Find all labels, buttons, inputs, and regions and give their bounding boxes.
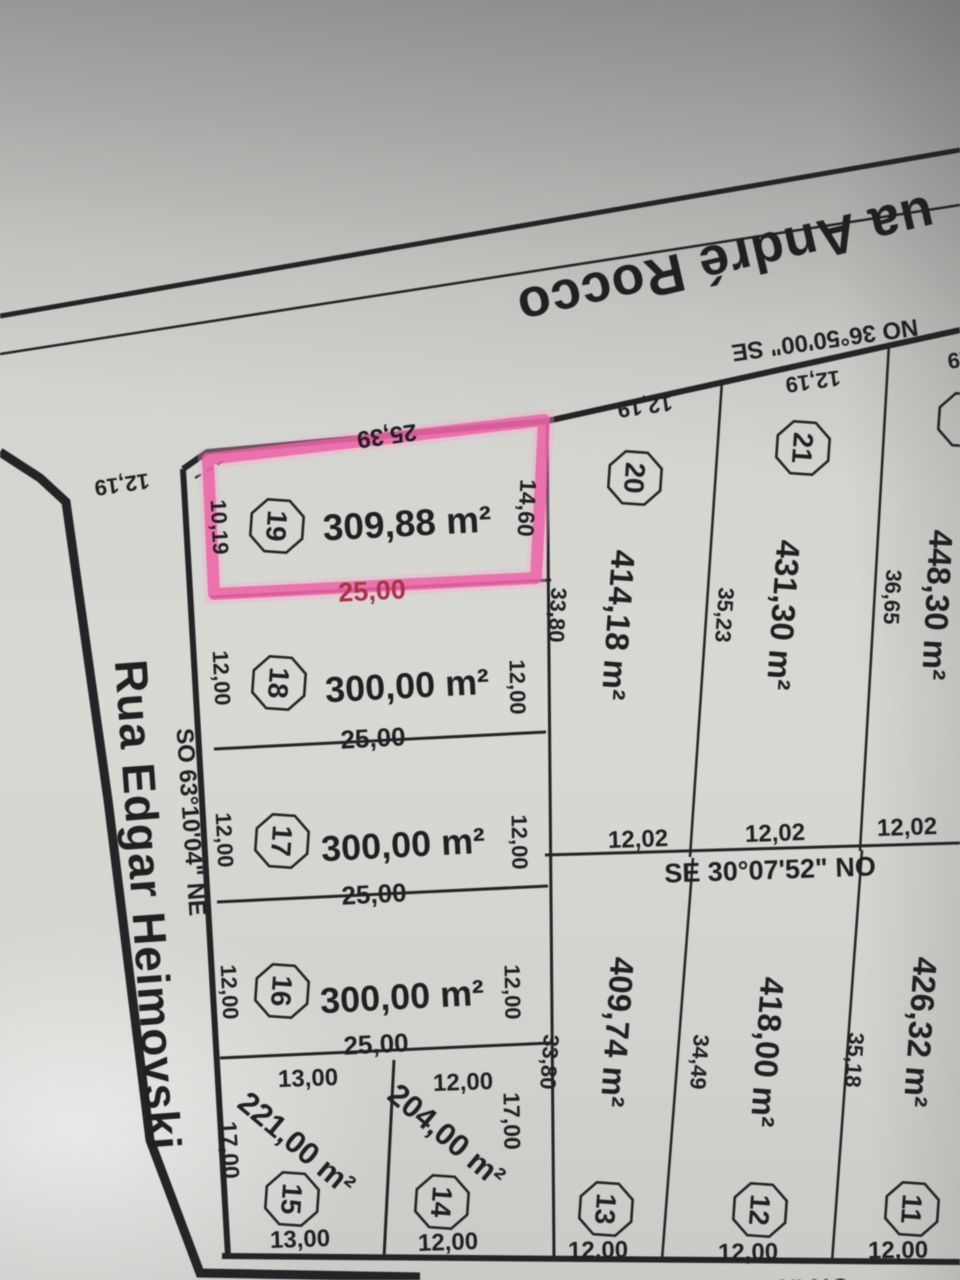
- bottom-bearing-partial-label: SE 30°40'50" NO: [639, 1273, 851, 1280]
- middle-width-1: 12,02: [608, 825, 669, 854]
- lot-17-area-label: 300,00 m²: [320, 820, 486, 870]
- lot-12-area-label: 418,00 m²: [744, 976, 791, 1129]
- lot-21-number: 21: [786, 431, 819, 464]
- lot-19-rear-dim: 25,00: [337, 574, 406, 607]
- lot-15-left-dim: 17,00: [216, 1121, 245, 1180]
- lot-13-area-label: 409,74 m²: [594, 956, 641, 1109]
- lot-13-rear-dim: 12,00: [568, 1236, 629, 1264]
- lot-11-rear-dim: 12,00: [868, 1236, 929, 1264]
- lot-20-side-dim: 33,80: [544, 587, 572, 643]
- lot-18-right-dim: 12,00: [505, 659, 531, 714]
- lot-21-side-dim: 35,23: [710, 587, 739, 644]
- middle-width-2: 12,02: [745, 819, 806, 848]
- lot-17-number: 17: [265, 824, 298, 857]
- lot-16-left-dim: 12,00: [216, 964, 244, 1020]
- plat-photo: ua André Rocco NO 36°50'00" SE Rua Edgar…: [0, 0, 960, 1280]
- lot-18-number: 18: [262, 666, 295, 699]
- lot-14-front-dim: 12,00: [433, 1068, 494, 1097]
- lot-15-rear-dim: 13,00: [270, 1225, 331, 1254]
- frontage-lot20-label: 12,19: [616, 390, 674, 422]
- lot-19-front-dim: 25,39: [355, 418, 418, 453]
- lot-19-right-dim: 14,60: [513, 479, 542, 538]
- lot-11-area-label: 426,32 m²: [897, 956, 944, 1109]
- lot-14-number: 14: [425, 1185, 458, 1219]
- street-andre-rocco-label: ua André Rocco: [511, 184, 940, 338]
- lot-20-area-label: 414,18 m²: [595, 549, 642, 702]
- lot-13-number: 13: [589, 1192, 622, 1225]
- lot-17-right-dim: 12,00: [507, 814, 533, 869]
- lot-19-left-dim: 10,19: [206, 499, 234, 555]
- lot-14-rear-dim: 12,00: [418, 1228, 479, 1257]
- lot-17-rear-dim: 25,00: [341, 877, 408, 910]
- lot-16-area-label: 300,00 m²: [319, 972, 485, 1022]
- lot-12-side-dim: 34,49: [685, 1034, 714, 1091]
- lot-19-area-label: 309,88 m²: [322, 499, 493, 549]
- lot-15-front-dim: 13,00: [278, 1064, 339, 1093]
- lot-22-area-label: 448,30 m²: [915, 529, 960, 681]
- lot-20-number: 20: [618, 461, 651, 494]
- lot-18-rear-dim: 25,00: [340, 721, 407, 754]
- lot-14-right-dim: 17,00: [498, 1092, 525, 1150]
- middle-width-3: 12,02: [877, 813, 938, 842]
- column-divider-line: [547, 421, 554, 1258]
- middle-bearing-label: SE 30°07'52" NO: [664, 851, 877, 888]
- lot-16-rear-dim: 25,00: [343, 1027, 410, 1060]
- lot-13-side-dim: 33,80: [535, 1034, 564, 1091]
- lot-11-side-dim: 35,18: [840, 1032, 869, 1089]
- lot-18-area-label: 300,00 m²: [324, 661, 490, 711]
- lot-12-number: 12: [743, 1193, 776, 1226]
- frontage-lot21-label: 12,19: [784, 365, 842, 397]
- lot-11-number: 11: [895, 1193, 928, 1225]
- frontage-corner-label: 12,19: [93, 468, 151, 500]
- lot-17-left-dim: 12,00: [211, 812, 239, 868]
- lot-21-area-label: 431,30 m²: [760, 539, 807, 692]
- lot-22-side-dim: 36,65: [879, 569, 907, 625]
- street-edgar-heimovski-bearing: SO 63°10'04" NE: [170, 727, 210, 917]
- plat-map: ua André Rocco NO 36°50'00" SE Rua Edgar…: [0, 0, 960, 1280]
- lot-22-marker-partial: [937, 392, 960, 448]
- lot-19-number: 19: [260, 509, 293, 542]
- lot-18-left-dim: 12,00: [208, 650, 236, 706]
- lot-12-rear-dim: 12,00: [718, 1238, 779, 1266]
- frontage-lot22-partial-label: 12,19: [946, 341, 960, 373]
- lot-15-number: 15: [275, 1182, 308, 1215]
- lot-16-right-dim: 12,00: [500, 964, 526, 1019]
- lot-16-number: 16: [265, 974, 298, 1007]
